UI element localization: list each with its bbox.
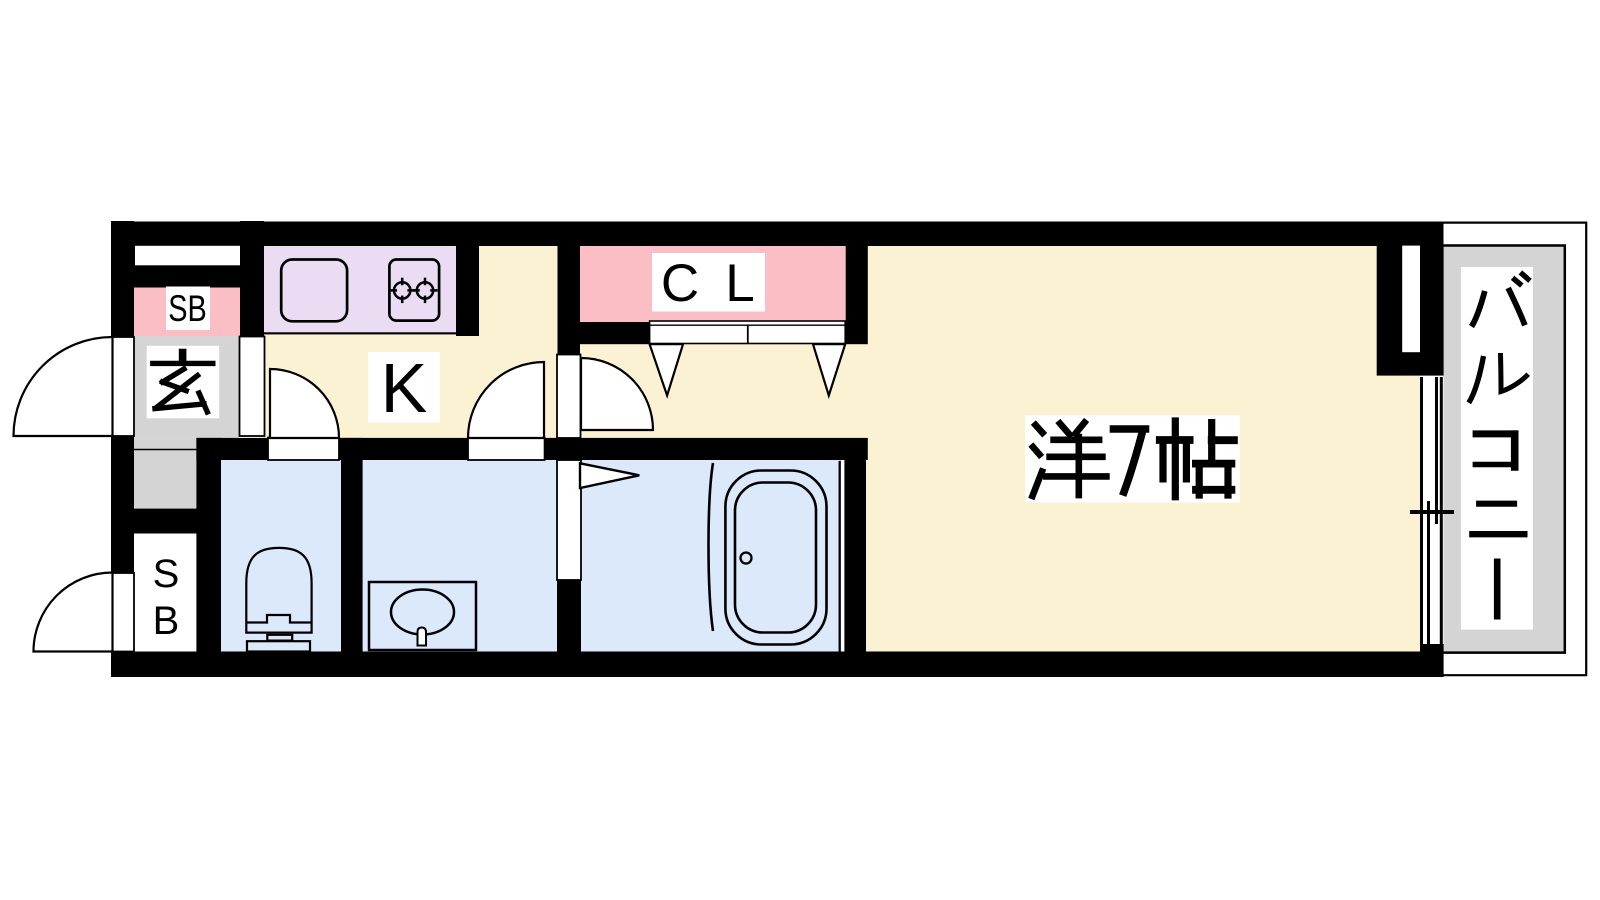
svg-text:L: L [725,254,754,313]
svg-text:K: K [381,349,428,427]
svg-text:S: S [153,552,180,596]
svg-text:B: B [153,599,180,643]
svg-text:C: C [661,254,699,313]
svg-text:SB: SB [168,288,207,329]
